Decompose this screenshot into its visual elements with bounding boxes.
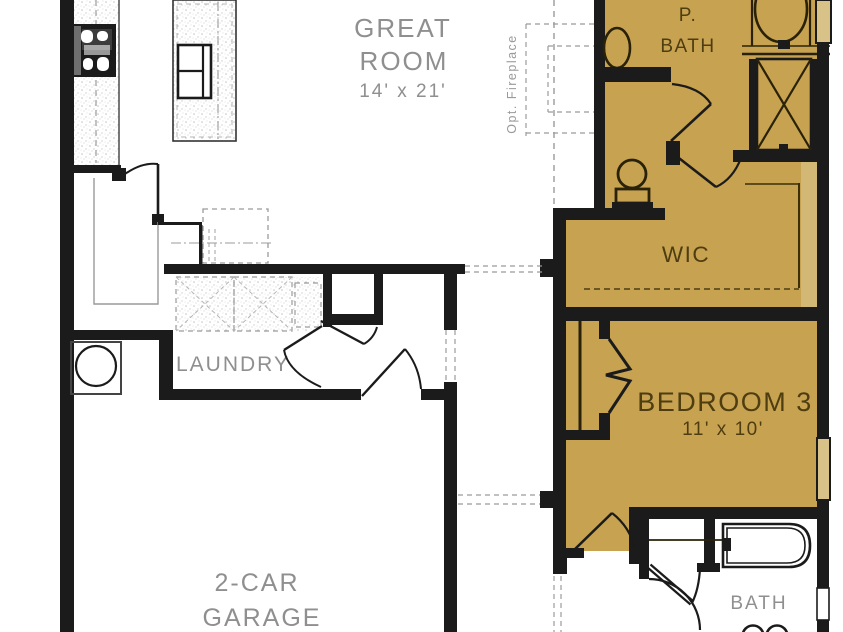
svg-text:GREAT: GREAT bbox=[354, 13, 452, 43]
svg-text:BATH: BATH bbox=[730, 593, 787, 614]
svg-text:11' x 10': 11' x 10' bbox=[682, 419, 764, 440]
svg-text:14' x 21': 14' x 21' bbox=[359, 81, 447, 102]
svg-text:BEDROOM 3: BEDROOM 3 bbox=[637, 387, 813, 417]
svg-text:ROOM: ROOM bbox=[360, 46, 449, 76]
svg-text:BATH: BATH bbox=[660, 36, 715, 57]
svg-text:2-CAR: 2-CAR bbox=[214, 569, 299, 597]
svg-text:GARAGE: GARAGE bbox=[203, 604, 322, 632]
svg-text:LAUNDRY: LAUNDRY bbox=[176, 353, 290, 376]
svg-text:Opt. Fireplace: Opt. Fireplace bbox=[505, 34, 519, 134]
svg-text:WIC: WIC bbox=[662, 242, 710, 267]
svg-text:P.: P. bbox=[679, 5, 698, 26]
